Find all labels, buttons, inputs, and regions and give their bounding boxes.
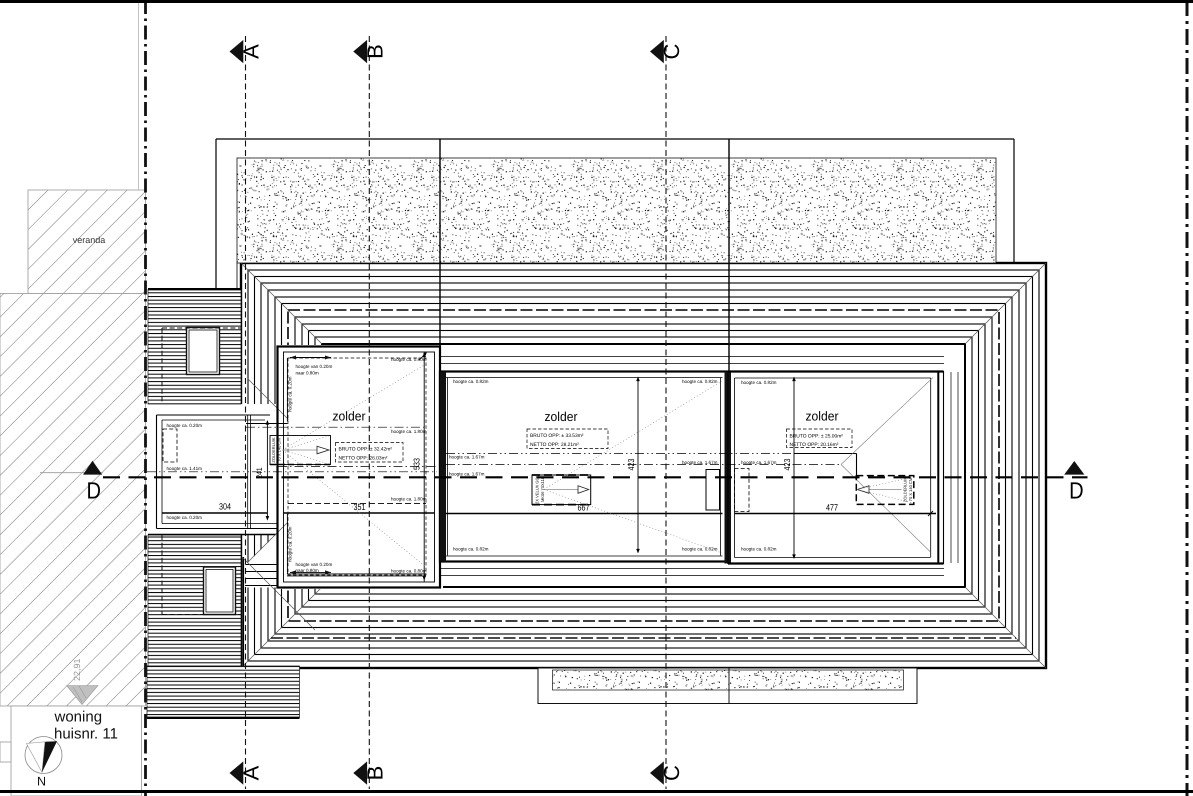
svg-text:B: B — [362, 766, 387, 781]
svg-text:hoogte ca. 0.82m: hoogte ca. 0.82m — [741, 380, 777, 385]
svg-text:70 X 140 CM: 70 X 140 CM — [908, 478, 913, 501]
svg-text:hoogte ca. 0.20m: hoogte ca. 0.20m — [167, 423, 203, 428]
svg-text:D: D — [87, 478, 102, 504]
svg-text:hoogte van 0.20m: hoogte van 0.20m — [296, 364, 333, 369]
svg-text:hoogte ca. 1.67m: hoogte ca. 1.67m — [449, 472, 485, 477]
svg-text:hoogte ca. 1.80m: hoogte ca. 1.80m — [391, 497, 427, 502]
svg-text:hoogte ca. 0.82m: hoogte ca. 0.82m — [453, 547, 489, 552]
svg-text:hoogte ca. 1.67m: hoogte ca. 1.67m — [449, 455, 485, 460]
svg-text:naar 0.80m: naar 0.80m — [296, 568, 319, 573]
svg-text:veranda: veranda — [73, 235, 106, 245]
svg-text:423: 423 — [782, 458, 792, 470]
svg-text:hoogte van 0.20m: hoogte van 0.20m — [296, 562, 333, 567]
svg-text:B: B — [362, 44, 387, 59]
svg-text:huisnr. 11: huisnr. 11 — [54, 726, 118, 743]
svg-text:N: N — [37, 775, 46, 789]
svg-text:70 X 140 CM: 70 X 140 CM — [276, 438, 281, 461]
svg-text:NETTO OPP: 26.03m²: NETTO OPP: 26.03m² — [339, 456, 388, 462]
svg-text:naar 0.80m: naar 0.80m — [296, 371, 319, 376]
svg-text:hoogte ca. 1.41m: hoogte ca. 1.41m — [167, 466, 203, 471]
svg-text:ZOLDERLUIK: ZOLDERLUIK — [903, 477, 908, 502]
svg-text:hoogte ca. 1.67m: hoogte ca. 1.67m — [741, 460, 777, 465]
svg-text:NETTO OPP: 28.21m²: NETTO OPP: 28.21m² — [530, 442, 579, 448]
svg-text:hoogte ca. 0.82m: hoogte ca. 0.82m — [682, 547, 718, 552]
svg-text:22,91: 22,91 — [72, 658, 82, 681]
svg-text:zolder: zolder — [545, 409, 579, 424]
svg-text:A: A — [239, 765, 264, 780]
svg-text:C: C — [659, 43, 684, 59]
svg-text:A: A — [239, 44, 264, 59]
svg-text:hoogte ca. 0.80m: hoogte ca. 0.80m — [391, 569, 427, 574]
svg-text:BRUTO OPP: ± 25.00m²: BRUTO OPP: ± 25.00m² — [790, 434, 844, 440]
svg-text:hoogte ca. 0.82m: hoogte ca. 0.82m — [682, 379, 718, 384]
svg-text:2X VELUX GGL: 2X VELUX GGL — [535, 474, 540, 503]
svg-text:NETTO OPP: 20.16m²: NETTO OPP: 20.16m² — [790, 442, 839, 448]
svg-text:zolder: zolder — [333, 409, 367, 424]
svg-text:533: 533 — [412, 458, 422, 470]
svg-text:hoogte ca. 0.20m: hoogte ca. 0.20m — [288, 526, 293, 562]
svg-text:D: D — [1069, 478, 1084, 504]
svg-text:BRUTO OPP: ± 32.42m²: BRUTO OPP: ± 32.42m² — [339, 447, 393, 453]
svg-text:woning: woning — [54, 709, 103, 726]
svg-text:hoogte ca. 0.82m: hoogte ca. 0.82m — [453, 379, 489, 384]
svg-text:zolder: zolder — [806, 409, 840, 424]
svg-text:hoogte ca. 0.20m: hoogte ca. 0.20m — [167, 515, 203, 520]
svg-text:423: 423 — [626, 458, 636, 470]
svg-text:ZOLDERLUIK: ZOLDERLUIK — [271, 437, 276, 462]
svg-text:304: 304 — [219, 502, 231, 512]
svg-text:hoogte ca. 1.80m: hoogte ca. 1.80m — [391, 429, 427, 434]
svg-text:hoogte ca. 0.82m: hoogte ca. 0.82m — [741, 547, 777, 552]
svg-text:477: 477 — [826, 503, 838, 513]
svg-text:C: C — [659, 765, 684, 781]
svg-text:BRUTO OPP: ± 33.53m²: BRUTO OPP: ± 33.53m² — [530, 433, 584, 439]
svg-text:hoogte ca. 0.20m: hoogte ca. 0.20m — [288, 376, 293, 412]
